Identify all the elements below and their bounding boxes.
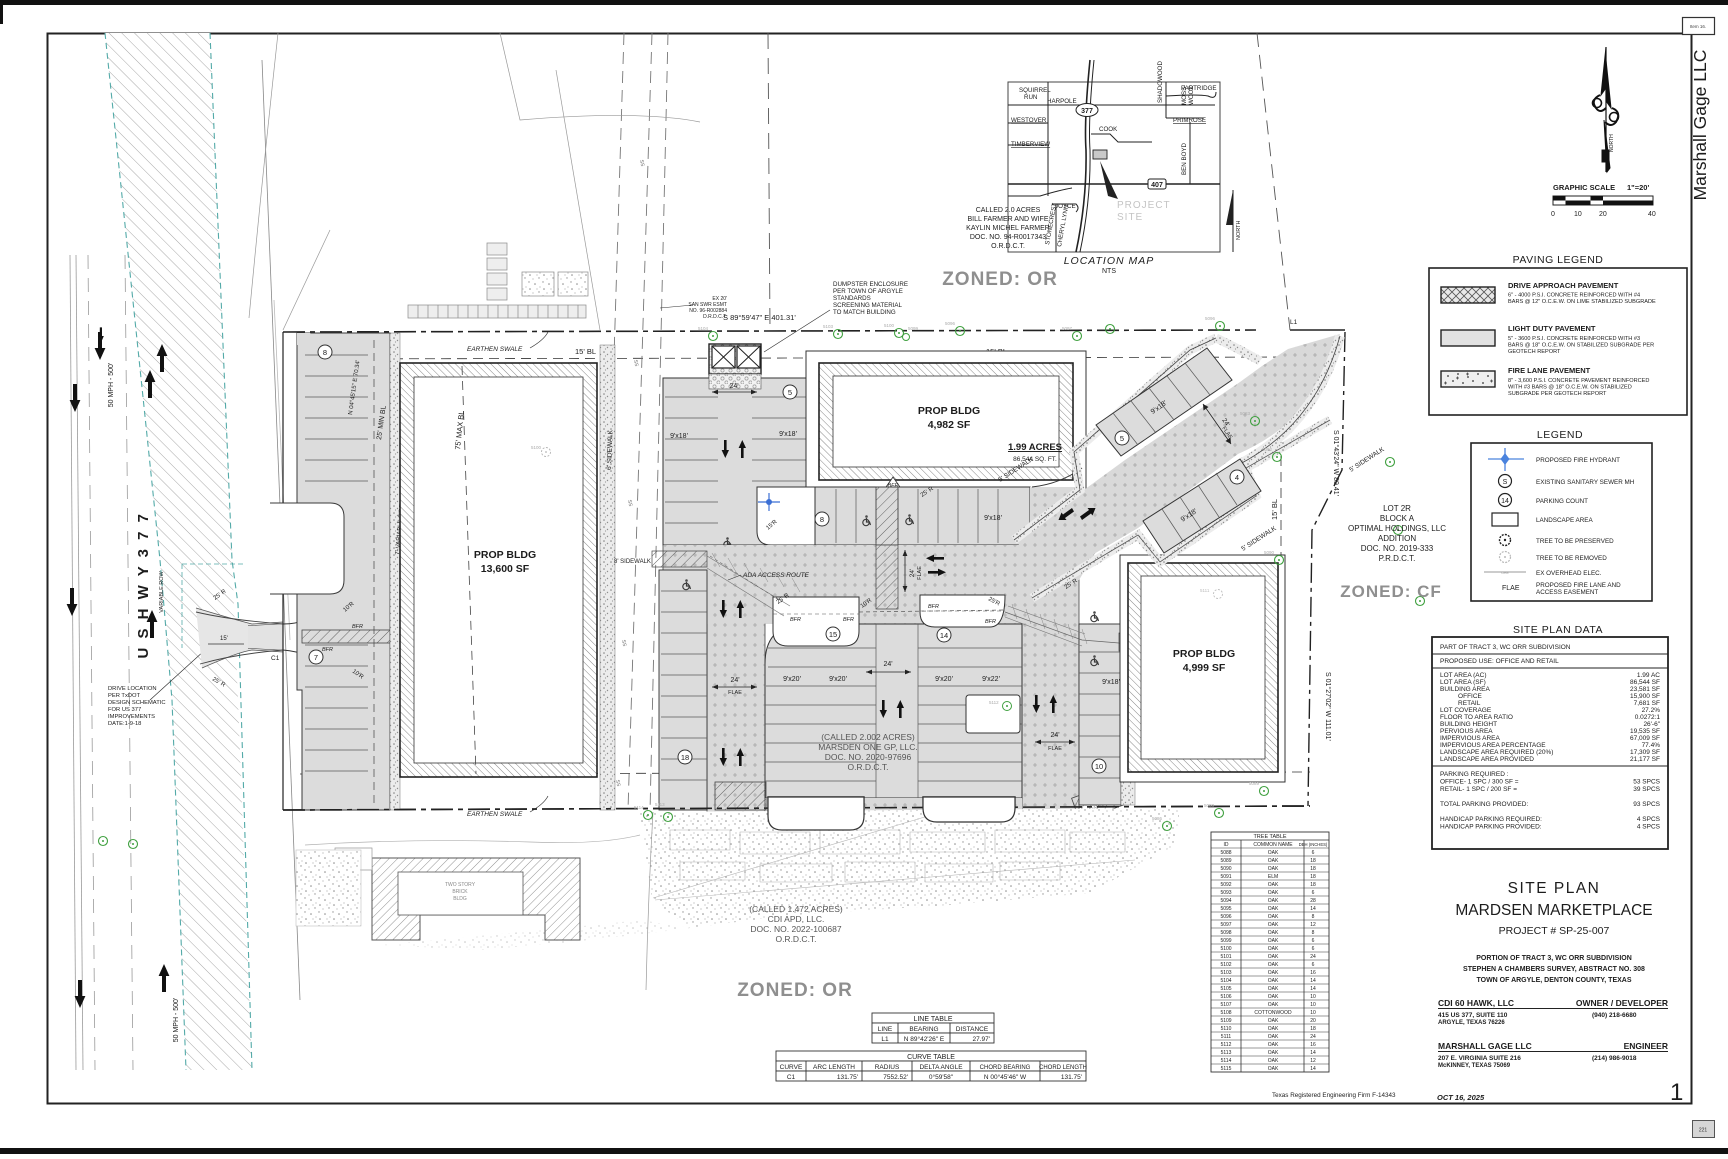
svg-text:LINE: LINE: [878, 1026, 893, 1033]
svg-text:NORTH: NORTH: [1236, 221, 1242, 240]
svg-text:5100: 5100: [1220, 946, 1231, 952]
svg-text:14: 14: [1310, 1066, 1316, 1072]
svg-text:14: 14: [1310, 906, 1316, 912]
svg-text:27.97': 27.97': [972, 1036, 990, 1043]
svg-text:4,999 SF: 4,999 SF: [1183, 662, 1226, 674]
svg-text:24': 24': [730, 677, 739, 684]
svg-text:OAK: OAK: [1268, 882, 1279, 888]
svg-text:BFR: BFR: [843, 617, 854, 623]
svg-text:COTTONWOOD: COTTONWOOD: [1254, 1010, 1292, 1016]
svg-text:PROP BLDG: PROP BLDG: [474, 549, 536, 561]
svg-text:PART OF TRACT 3, WC ORR SUBDIV: PART OF TRACT 3, WC ORR SUBDIVISION: [1440, 644, 1571, 651]
svg-text:18: 18: [1310, 858, 1316, 864]
svg-text:5114: 5114: [1221, 1058, 1232, 1064]
svg-text:5099: 5099: [1220, 938, 1231, 944]
svg-text:EXISTING SANITARY SEWER MH: EXISTING SANITARY SEWER MH: [1536, 479, 1635, 486]
svg-text:5083: 5083: [1240, 411, 1251, 416]
svg-text:13,600 SF: 13,600 SF: [481, 563, 530, 575]
svg-text:OAK: OAK: [1268, 994, 1279, 1000]
svg-text:EARTHEN SWALE: EARTHEN SWALE: [467, 811, 523, 818]
svg-text:PARKING REQUIRED :: PARKING REQUIRED :: [1440, 771, 1509, 778]
svg-text:ADDITION: ADDITION: [1378, 534, 1416, 543]
svg-text:5: 5: [1120, 434, 1124, 443]
svg-text:0°59'58": 0°59'58": [929, 1073, 954, 1081]
svg-text:50 MPH - 500': 50 MPH - 500': [173, 998, 180, 1043]
svg-text:(214) 986-9018: (214) 986-9018: [1592, 1055, 1637, 1062]
svg-text:HANDICAP PARKING PROVIDED:: HANDICAP PARKING PROVIDED:: [1440, 824, 1542, 831]
svg-text:5103: 5103: [823, 324, 834, 329]
svg-text:8: 8: [820, 515, 824, 524]
svg-text:VARIABLE ROW: VARIABLE ROW: [159, 570, 165, 612]
svg-text:1.99 ACRES: 1.99 ACRES: [1008, 442, 1062, 453]
svg-text:MOSS-: MOSS-: [1181, 85, 1188, 105]
svg-text:OAK: OAK: [1268, 970, 1279, 976]
svg-text:CHORD BEARING: CHORD BEARING: [980, 1065, 1031, 1071]
svg-text:PROP BLDG: PROP BLDG: [1173, 648, 1235, 660]
svg-text:5115: 5115: [1221, 1066, 1232, 1072]
svg-text:DOC. NO. 2020-97696: DOC. NO. 2020-97696: [825, 752, 912, 762]
svg-text:5112: 5112: [989, 700, 999, 705]
svg-text:ADA ACCESS ROUTE: ADA ACCESS ROUTE: [742, 572, 810, 579]
svg-text:WITH #3 BARS @ 18" O.C.E.W. ON: WITH #3 BARS @ 18" O.C.E.W. ON STABILIZE…: [1508, 385, 1632, 391]
svg-text:20: 20: [1310, 1018, 1316, 1024]
svg-text:SHADOWOOD: SHADOWOOD: [1157, 61, 1164, 103]
svg-text:407: 407: [1151, 182, 1163, 189]
svg-text:17,309 SF: 17,309 SF: [1630, 749, 1660, 756]
svg-text:14: 14: [1310, 1050, 1316, 1056]
svg-text:5" - 3600 P.S.I. CONCRETE REI: 5" - 3600 P.S.I. CONCRETE REINFORCED WIT…: [1508, 336, 1640, 342]
svg-text:EX OVERHEAD ELEC.: EX OVERHEAD ELEC.: [1536, 570, 1602, 577]
svg-text:14: 14: [1501, 498, 1509, 505]
svg-text:TREE TABLE: TREE TABLE: [1253, 834, 1286, 840]
svg-text:14: 14: [1310, 978, 1316, 984]
svg-text:5111: 5111: [1200, 588, 1210, 593]
svg-text:NORTH: NORTH: [1609, 134, 1615, 152]
svg-text:5097: 5097: [1220, 922, 1231, 928]
svg-text:OHE: OHE: [1501, 571, 1509, 575]
svg-text:SQUIRREL: SQUIRREL: [1019, 87, 1051, 94]
svg-text:4 SPCS: 4 SPCS: [1637, 824, 1661, 831]
svg-text:OAK: OAK: [1268, 962, 1279, 968]
svg-text:N 89°42'26" E: N 89°42'26" E: [904, 1035, 945, 1043]
svg-text:1"=20': 1"=20': [1627, 183, 1649, 192]
svg-text:LINE TABLE: LINE TABLE: [913, 1016, 952, 1023]
svg-text:PER TxDOT: PER TxDOT: [108, 693, 141, 699]
svg-text:5088: 5088: [1204, 803, 1215, 808]
svg-text:WOOD: WOOD: [1188, 85, 1195, 105]
svg-text:415 US 377, SUITE 110: 415 US 377, SUITE 110: [1438, 1012, 1508, 1019]
svg-text:MARSDEN ONE GP, LLC.: MARSDEN ONE GP, LLC.: [818, 742, 918, 752]
svg-text:OAK: OAK: [1268, 938, 1279, 944]
svg-text:5100: 5100: [884, 323, 895, 328]
svg-text:1: 1: [1670, 1079, 1683, 1106]
svg-text:O.R.D.C.T.: O.R.D.C.T.: [775, 934, 816, 944]
svg-text:5113: 5113: [1221, 1050, 1232, 1056]
svg-text:19,535 SF: 19,535 SF: [1630, 728, 1660, 735]
svg-text:OAK: OAK: [1268, 978, 1279, 984]
svg-text:24: 24: [1310, 954, 1316, 960]
svg-text:N 00°45'46" W: N 00°45'46" W: [984, 1073, 1027, 1081]
svg-text:5090: 5090: [1264, 550, 1275, 555]
svg-text:RETAIL: RETAIL: [1440, 700, 1481, 707]
svg-text:ZONED: OR: ZONED: OR: [942, 269, 1058, 290]
svg-text:9'x18': 9'x18': [984, 515, 1002, 522]
svg-text:LOT AREA (SF): LOT AREA (SF): [1440, 679, 1486, 686]
svg-text:TIMBERVIEW: TIMBERVIEW: [1011, 141, 1050, 148]
svg-text:McKINNEY, TEXAS 75069: McKINNEY, TEXAS 75069: [1438, 1063, 1511, 1069]
svg-text:OCT 16, 2025: OCT 16, 2025: [1437, 1093, 1485, 1102]
svg-text:5105: 5105: [1220, 986, 1231, 992]
svg-text:10: 10: [1574, 211, 1582, 218]
svg-text:BARS @ 18" O.C.E.W. ON STABILI: BARS @ 18" O.C.E.W. ON STABILIZED SUBGRA…: [1508, 343, 1654, 349]
svg-text:GEOTECH REPORT: GEOTECH REPORT: [1508, 349, 1561, 355]
svg-text:5104: 5104: [1220, 978, 1231, 984]
svg-text:OAK: OAK: [1268, 1002, 1279, 1008]
svg-text:(940) 218-6680: (940) 218-6680: [1592, 1012, 1637, 1019]
svg-text:TOWN OF ARGYLE, DENTON COUNTY,: TOWN OF ARGYLE, DENTON COUNTY, TEXAS: [1476, 977, 1631, 984]
svg-text:OAK: OAK: [1268, 866, 1279, 872]
svg-text:OFFICE: OFFICE: [1440, 693, 1483, 700]
svg-text:OAK: OAK: [1268, 850, 1279, 856]
svg-text:S 01°43'24" W 89.41': S 01°43'24" W 89.41': [1332, 430, 1340, 496]
svg-text:BRICK: BRICK: [452, 889, 468, 895]
svg-text:C1: C1: [787, 1074, 796, 1081]
svg-text:18: 18: [1310, 882, 1316, 888]
svg-text:LOT AREA (AC): LOT AREA (AC): [1440, 672, 1486, 679]
svg-text:GRAPHIC SCALE: GRAPHIC SCALE: [1553, 183, 1615, 192]
svg-text:COOK: COOK: [1099, 126, 1118, 133]
svg-text:5092: 5092: [1262, 447, 1273, 452]
svg-text:8: 8: [323, 348, 327, 357]
svg-text:SUBGRADE PER GEOTECH REPORT: SUBGRADE PER GEOTECH REPORT: [1508, 391, 1607, 397]
svg-text:26'-6": 26'-6": [1643, 721, 1660, 728]
svg-text:LANDSCAPE AREA: LANDSCAPE AREA: [1536, 517, 1593, 524]
svg-text:ZONED: OR: ZONED: OR: [737, 980, 853, 1001]
svg-text:5099: 5099: [908, 326, 919, 331]
svg-text:BUILDING AREA: BUILDING AREA: [1440, 686, 1491, 693]
svg-text:LOT 2R: LOT 2R: [1383, 504, 1411, 513]
svg-text:6' SIDEWALK: 6' SIDEWALK: [606, 429, 614, 470]
svg-text:DESIGN SCHEMATIC: DESIGN SCHEMATIC: [108, 700, 166, 706]
svg-text:STANDARDS: STANDARDS: [833, 295, 871, 302]
svg-text:OAK: OAK: [1268, 1026, 1279, 1032]
svg-text:OAK: OAK: [1268, 930, 1279, 936]
svg-text:TOTAL PARKING PROVIDED:: TOTAL PARKING PROVIDED:: [1440, 801, 1528, 808]
svg-text:86,544 SF: 86,544 SF: [1630, 679, 1660, 686]
svg-text:SCREENING MATERIAL: SCREENING MATERIAL: [833, 302, 903, 309]
svg-text:LEGEND: LEGEND: [1537, 429, 1583, 441]
svg-text:5100: 5100: [531, 445, 542, 450]
svg-text:5101: 5101: [1220, 954, 1231, 960]
svg-text:5103: 5103: [1220, 970, 1231, 976]
svg-text:PARKING COUNT: PARKING COUNT: [1536, 498, 1588, 505]
svg-text:EARTHEN SWALE: EARTHEN SWALE: [467, 346, 523, 353]
svg-text:4: 4: [1235, 473, 1239, 482]
svg-text:HARPOLE: HARPOLE: [1047, 98, 1077, 105]
svg-text:PORTION OF TRACT 3, WC ORR SUB: PORTION OF TRACT 3, WC ORR SUBDIVISION: [1476, 955, 1632, 962]
svg-text:15' BL: 15' BL: [1270, 499, 1279, 520]
svg-text:0.0272:1: 0.0272:1: [1635, 714, 1661, 721]
svg-text:77.4%: 77.4%: [1642, 742, 1661, 749]
svg-text:DOC. NO. 2019-333: DOC. NO. 2019-333: [1361, 544, 1434, 553]
svg-text:RADIUS: RADIUS: [875, 1064, 900, 1071]
svg-text:OAK: OAK: [1268, 922, 1279, 928]
svg-text:5106: 5106: [1220, 994, 1231, 1000]
svg-text:10: 10: [1095, 762, 1103, 771]
svg-text:ARGYLE, TEXAS 76226: ARGYLE, TEXAS 76226: [1438, 1020, 1505, 1026]
svg-text:CDI 60 HAWK, LLC: CDI 60 HAWK, LLC: [1438, 998, 1514, 1008]
svg-text:PROPOSED FIRE HYDRANT: PROPOSED FIRE HYDRANT: [1536, 457, 1620, 464]
svg-text:IMPERVIOUS AREA: IMPERVIOUS AREA: [1440, 735, 1501, 742]
svg-text:PROP BLDG: PROP BLDG: [918, 405, 980, 417]
svg-text:ELM: ELM: [1268, 874, 1278, 880]
svg-text:FLAE: FLAE: [1502, 585, 1520, 592]
svg-text:BFR: BFR: [790, 617, 801, 623]
svg-text:OAK: OAK: [1268, 1066, 1279, 1072]
svg-text:O.R.D.C.T.: O.R.D.C.T.: [847, 762, 888, 772]
svg-text:5090: 5090: [1220, 866, 1231, 872]
svg-text:CURVE: CURVE: [780, 1064, 803, 1071]
svg-text:C1: C1: [271, 655, 280, 662]
svg-text:SITE PLAN: SITE PLAN: [1508, 880, 1601, 897]
svg-text:10: 10: [1310, 994, 1316, 1000]
svg-text:5107: 5107: [1220, 1002, 1231, 1008]
svg-text:STEPHEN A CHAMBERS SURVEY, ABS: STEPHEN A CHAMBERS SURVEY, ABSTRACT NO. …: [1463, 966, 1645, 973]
svg-text:6: 6: [1312, 946, 1315, 952]
svg-text:9'x18': 9'x18': [670, 433, 688, 440]
svg-text:TREE TO BE REMOVED: TREE TO BE REMOVED: [1536, 555, 1607, 562]
svg-text:OAK: OAK: [1268, 890, 1279, 896]
svg-text:5112: 5112: [1221, 1042, 1232, 1048]
svg-text:24': 24': [1050, 732, 1059, 739]
svg-text:FIRE LANE PAVEMENT: FIRE LANE PAVEMENT: [1508, 366, 1591, 375]
svg-text:7,681 SF: 7,681 SF: [1634, 700, 1660, 707]
svg-text:5108: 5108: [1220, 1010, 1231, 1016]
svg-text:5102: 5102: [1220, 962, 1231, 968]
svg-text:BLOCK A: BLOCK A: [1380, 514, 1415, 523]
svg-text:27.2%: 27.2%: [1642, 707, 1661, 714]
svg-text:9'x22': 9'x22': [982, 676, 1000, 683]
svg-text:LOCATION MAP: LOCATION MAP: [1064, 255, 1155, 267]
svg-text:OAK: OAK: [1268, 898, 1279, 904]
svg-text:207 E. VIRGINIA SUITE 216: 207 E. VIRGINIA SUITE 216: [1438, 1055, 1521, 1062]
svg-text:40: 40: [1648, 211, 1656, 218]
svg-text:50 MPH - 500': 50 MPH - 500': [108, 363, 115, 408]
svg-text:OAK: OAK: [1268, 1018, 1279, 1024]
svg-text:6: 6: [1312, 938, 1315, 944]
svg-text:S 89°59'47" E 401.31': S 89°59'47" E 401.31': [723, 313, 796, 322]
svg-text:RUN: RUN: [1024, 94, 1037, 101]
svg-text:9'x20': 9'x20': [783, 676, 801, 683]
svg-text:5114: 5114: [634, 805, 644, 810]
svg-text:SITE PLAN DATA: SITE PLAN DATA: [1513, 624, 1603, 636]
svg-text:18: 18: [1310, 874, 1316, 880]
svg-text:16: 16: [1310, 970, 1316, 976]
svg-text:BARS @ 12" O.C.E.W. ON LIME ST: BARS @ 12" O.C.E.W. ON LIME STABILIZED S…: [1508, 299, 1656, 305]
svg-text:0: 0: [1551, 211, 1555, 218]
svg-text:OAK: OAK: [1268, 914, 1279, 920]
svg-text:OAK: OAK: [1268, 986, 1279, 992]
svg-text:IMPERVIOUS AREA PERCENTAGE: IMPERVIOUS AREA PERCENTAGE: [1440, 742, 1546, 749]
svg-text:BEARING: BEARING: [909, 1026, 938, 1033]
svg-text:5088: 5088: [1220, 850, 1231, 856]
svg-text:PROJECT # SP-25-007: PROJECT # SP-25-007: [1499, 925, 1610, 937]
svg-text:4,982 SF: 4,982 SF: [928, 419, 971, 431]
svg-text:OAK: OAK: [1268, 946, 1279, 952]
svg-text:7552.52': 7552.52': [883, 1074, 908, 1081]
svg-text:(CALLED 2.002 ACRES): (CALLED 2.002 ACRES): [821, 732, 915, 742]
svg-text:21,177 SF: 21,177 SF: [1630, 756, 1660, 763]
svg-text:BEN BOYD: BEN BOYD: [1181, 142, 1188, 175]
svg-text:TREE TO BE PRESERVED: TREE TO BE PRESERVED: [1536, 538, 1614, 545]
svg-text:FLAE: FLAE: [728, 690, 742, 696]
svg-text:5089: 5089: [1220, 858, 1231, 864]
svg-text:131.75': 131.75': [1061, 1074, 1082, 1081]
svg-text:9'x18': 9'x18': [1102, 679, 1120, 686]
svg-text:9'x20': 9'x20': [829, 676, 847, 683]
svg-text:5096: 5096: [1205, 316, 1216, 321]
svg-text:PERVIOUS AREA: PERVIOUS AREA: [1440, 728, 1493, 735]
svg-text:S: S: [1503, 479, 1508, 486]
svg-text:FOR US 377: FOR US 377: [108, 707, 141, 713]
svg-text:24': 24': [883, 661, 892, 668]
svg-text:6: 6: [1312, 850, 1315, 856]
svg-text:5109: 5109: [1220, 1018, 1231, 1024]
svg-text:12: 12: [1310, 1058, 1316, 1064]
svg-text:FLAE: FLAE: [917, 566, 923, 580]
svg-text:PROPOSED USE: OFFICE AND RETAI: PROPOSED USE: OFFICE AND RETAIL: [1440, 658, 1559, 665]
svg-text:DELTA ANGLE: DELTA ANGLE: [919, 1064, 963, 1071]
svg-text:L1: L1: [881, 1036, 889, 1043]
svg-text:18: 18: [681, 753, 689, 762]
svg-text:6" - 4000 P.S.I. CONCRETE REI: 6" - 4000 P.S.I. CONCRETE REINFORCED WIT…: [1508, 293, 1640, 299]
svg-text:PROPOSED FIRE LANE AND: PROPOSED FIRE LANE AND: [1536, 582, 1621, 589]
svg-text:NTS: NTS: [1102, 268, 1116, 275]
svg-text:9'x20': 9'x20': [935, 676, 953, 683]
svg-text:12: 12: [1310, 922, 1316, 928]
svg-text:PER TOWN OF ARGYLE: PER TOWN OF ARGYLE: [833, 288, 903, 295]
svg-text:18: 18: [1310, 1026, 1316, 1032]
svg-text:OAK: OAK: [1268, 954, 1279, 960]
svg-text:P.R.D.C.T.: P.R.D.C.T.: [1379, 554, 1416, 563]
svg-text:Texas Registered Engineering F: Texas Registered Engineering Firm F-1434…: [1272, 1092, 1396, 1099]
svg-text:5: 5: [788, 388, 792, 397]
svg-text:U S H W Y 3 7 7: U S H W Y 3 7 7: [135, 512, 152, 659]
svg-text:BFR: BFR: [322, 647, 333, 653]
svg-text:14: 14: [1310, 986, 1316, 992]
svg-text:CHORD LENGTH: CHORD LENGTH: [1039, 1065, 1087, 1071]
svg-text:18: 18: [1310, 866, 1316, 872]
svg-text:5092: 5092: [1220, 882, 1231, 888]
svg-text:TWO STORY: TWO STORY: [445, 882, 476, 888]
svg-text:LANDSCAPE AREA PROVIDED: LANDSCAPE AREA PROVIDED: [1440, 756, 1534, 763]
svg-text:ZONED: CF: ZONED: CF: [1340, 582, 1442, 601]
svg-text:D.R.D.C.T.: D.R.D.C.T.: [703, 314, 727, 320]
svg-text:8: 8: [1312, 914, 1315, 920]
svg-text:S 01°27'02" W 111.01': S 01°27'02" W 111.01': [1324, 672, 1332, 741]
svg-text:ID: ID: [1224, 842, 1229, 848]
svg-text:DISTANCE: DISTANCE: [956, 1026, 989, 1033]
svg-text:4 SPCS: 4 SPCS: [1637, 816, 1661, 823]
svg-text:ENGINEER: ENGINEER: [1624, 1041, 1668, 1051]
svg-text:20: 20: [1599, 211, 1607, 218]
svg-text:10: 10: [1310, 1002, 1316, 1008]
svg-text:DRIVE APPROACH PAVEMENT: DRIVE APPROACH PAVEMENT: [1508, 281, 1619, 290]
svg-text:IMPROVEMENTS: IMPROVEMENTS: [108, 714, 155, 720]
svg-text:HANDICAP PARKING REQUIRED:: HANDICAP PARKING REQUIRED:: [1440, 816, 1542, 823]
svg-text:15' BL: 15' BL: [575, 347, 596, 356]
svg-text:OFFICE- 1 SPC / 300 SF =: OFFICE- 1 SPC / 300 SF =: [1440, 779, 1519, 786]
svg-text:5091: 5091: [1220, 874, 1231, 880]
svg-text:PRIMROSE: PRIMROSE: [1173, 117, 1206, 124]
svg-text:5094: 5094: [1220, 898, 1231, 904]
svg-text:OAK: OAK: [1268, 1034, 1279, 1040]
svg-text:Item 16.: Item 16.: [1690, 24, 1706, 29]
svg-text:5110: 5110: [1221, 1026, 1232, 1032]
svg-text:5113: 5113: [655, 802, 665, 807]
svg-text:5089: 5089: [1249, 781, 1260, 786]
svg-text:221: 221: [1699, 1128, 1708, 1134]
svg-text:6: 6: [1312, 890, 1315, 896]
svg-text:5097: 5097: [1062, 326, 1073, 331]
svg-text:L1: L1: [1290, 319, 1298, 326]
svg-text:5096: 5096: [945, 321, 956, 326]
svg-text:OAK: OAK: [1268, 1050, 1279, 1056]
svg-text:BLDG: BLDG: [453, 896, 467, 902]
svg-text:5104: 5104: [698, 326, 709, 331]
svg-text:15: 15: [829, 630, 837, 639]
svg-text:5111: 5111: [1221, 1034, 1232, 1040]
svg-text:MARSHALL GAGE LLC: MARSHALL GAGE LLC: [1438, 1041, 1532, 1051]
svg-text:ARC LENGTH: ARC LENGTH: [813, 1064, 855, 1071]
svg-text:RETAIL- 1 SPC / 200 SF =: RETAIL- 1 SPC / 200 SF =: [1440, 786, 1517, 793]
svg-text:LANDSCAPE AREA REQUIRED (20%): LANDSCAPE AREA REQUIRED (20%): [1440, 749, 1553, 756]
svg-text:93 SPCS: 93 SPCS: [1633, 801, 1660, 808]
svg-text:OAK: OAK: [1268, 1058, 1279, 1064]
svg-text:8" - 3,600 P.S.I. CONCRETE PAV: 8" - 3,600 P.S.I. CONCRETE PAVEMENT REIN…: [1508, 378, 1649, 384]
svg-text:CURVE TABLE: CURVE TABLE: [907, 1054, 955, 1061]
svg-text:1.99 AC: 1.99 AC: [1637, 672, 1660, 679]
svg-text:39 SPCS: 39 SPCS: [1633, 786, 1660, 793]
svg-text:86,544 SQ. FT.: 86,544 SQ. FT.: [1013, 456, 1057, 463]
svg-text:15,900 SF: 15,900 SF: [1630, 693, 1660, 700]
svg-text:15': 15': [220, 636, 228, 642]
svg-text:DRIVE LOCATION: DRIVE LOCATION: [108, 686, 157, 692]
svg-text:LOT COVERAGE: LOT COVERAGE: [1440, 707, 1492, 714]
svg-text:OAK: OAK: [1268, 858, 1279, 864]
svg-text:OWNER / DEVELOPER: OWNER / DEVELOPER: [1576, 998, 1668, 1008]
svg-text:8' SIDEWALK: 8' SIDEWALK: [614, 559, 651, 565]
svg-text:ACCESS EASEMENT: ACCESS EASEMENT: [1536, 589, 1598, 596]
svg-text:BFR: BFR: [928, 604, 939, 610]
svg-text:24': 24': [909, 569, 916, 577]
svg-text:28: 28: [1310, 898, 1316, 904]
svg-text:OAK: OAK: [1268, 1042, 1279, 1048]
svg-text:DOC. NO. 2022-100687: DOC. NO. 2022-100687: [750, 924, 841, 934]
svg-text:COMMON NAME: COMMON NAME: [1253, 842, 1293, 848]
svg-text:PROJECT: PROJECT: [1117, 200, 1171, 211]
svg-text:377: 377: [1081, 108, 1093, 115]
svg-text:5096: 5096: [1220, 914, 1231, 920]
svg-text:OPTIMAL HOLDINGS, LLC: OPTIMAL HOLDINGS, LLC: [1348, 524, 1446, 533]
svg-text:9'x18': 9'x18': [779, 431, 797, 438]
svg-text:WESTOVER: WESTOVER: [1011, 117, 1047, 124]
svg-text:BFR: BFR: [352, 624, 363, 630]
svg-text:53 SPCS: 53 SPCS: [1633, 779, 1660, 786]
svg-text:24: 24: [1310, 1034, 1316, 1040]
svg-text:FLAE: FLAE: [1048, 746, 1062, 752]
svg-text:BFR: BFR: [985, 619, 996, 625]
